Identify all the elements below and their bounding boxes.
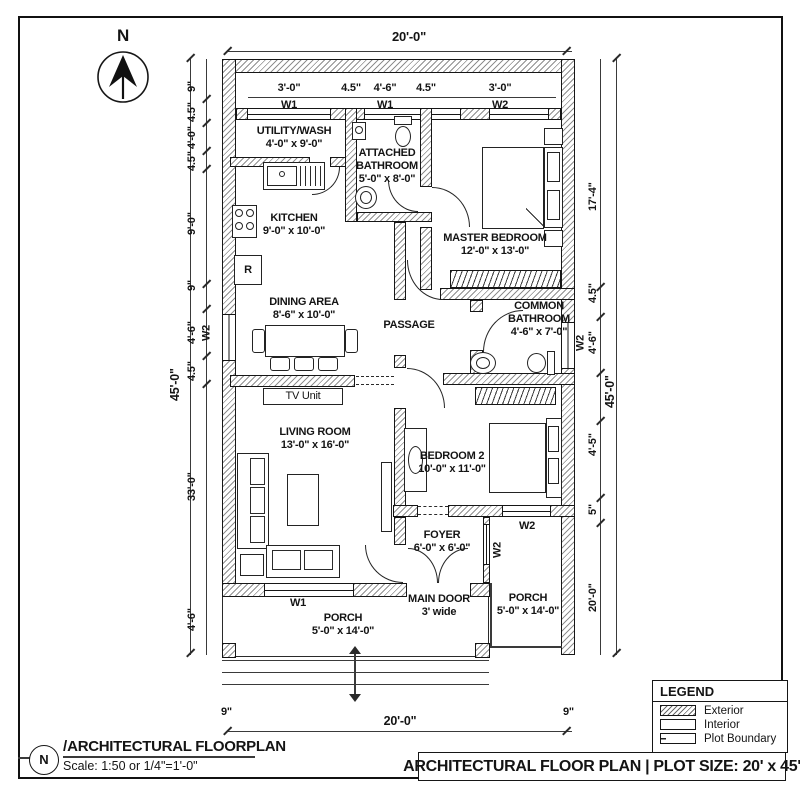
win-dim-3: 4'-6" xyxy=(365,82,405,94)
dim-left-8: 33'-0" xyxy=(185,468,199,506)
dim-left-6: 4'-6" xyxy=(185,316,199,350)
fridge: R xyxy=(234,255,262,285)
main-door-size: 3' wide xyxy=(397,606,481,619)
wall-exterior-bottom-1 xyxy=(222,583,265,597)
room-name: PORCH xyxy=(486,592,570,605)
wall-band-piece xyxy=(460,108,490,120)
tv-unit-label: TV Unit xyxy=(286,390,321,402)
tag-w2-foyer: W2 xyxy=(491,536,504,564)
sink-drainboard xyxy=(300,166,321,186)
label-main-door: MAIN DOOR 3' wide xyxy=(397,593,481,619)
opening-dashed-dining xyxy=(356,376,394,385)
dim-line-top xyxy=(227,51,572,52)
wall-master-bottom xyxy=(440,288,575,300)
room-size: 5'-0" x 14'-0" xyxy=(486,605,570,618)
room-name: DINING AREA xyxy=(249,296,359,309)
wall-band-piece xyxy=(548,108,561,120)
wall-exterior-top xyxy=(222,59,575,73)
legend-item: Interior xyxy=(653,717,787,731)
room-label-passage: PASSAGE xyxy=(369,319,449,332)
dim-right-w2-tag: W2 xyxy=(574,329,587,357)
wall-commonbath-bottom xyxy=(443,373,575,385)
dim-left-3: 4.5" xyxy=(185,149,199,173)
wall-bedroom2-bottom-a xyxy=(393,505,418,517)
dim-top: 20'-0" xyxy=(369,29,449,44)
room-label-master: MASTER BEDROOM 12'-0" x 13'-0" xyxy=(430,232,560,258)
dim-left-w2-tag: W2 xyxy=(200,319,213,347)
wall-band-piece xyxy=(236,108,248,120)
bed-pillow xyxy=(547,152,560,182)
room-name: UTILITY/WASH xyxy=(234,125,354,138)
room-size: 12'-0" x 13'-0" xyxy=(430,245,560,258)
dim-right-1: 4.5" xyxy=(586,281,600,305)
dim-bottom: 20'-0" xyxy=(366,714,434,728)
dim-overall-right: 45'-0" xyxy=(602,370,618,414)
step-arrow-up xyxy=(349,646,361,654)
dim-left-9: 4'-6" xyxy=(185,602,199,638)
dim-right-5: 20'-0" xyxy=(586,578,600,618)
plan-title: ARCHITECTURAL FLOORPLAN xyxy=(67,738,286,755)
north-label: N xyxy=(112,26,134,46)
sofa xyxy=(237,453,269,549)
dim-left-5: 9" xyxy=(185,274,199,298)
dining-chair xyxy=(345,329,358,353)
room-size: 5'-0" x 8'-0" xyxy=(350,173,424,186)
legend-label: Exterior xyxy=(704,705,744,717)
bed-fold-line xyxy=(526,206,543,228)
title-block: ARCHITECTURAL FLOOR PLAN | PLOT SIZE: 20… xyxy=(418,752,786,781)
room-name: BEDROOM 2 xyxy=(402,450,502,463)
room-size: 8'-6" x 10'-0" xyxy=(249,309,359,322)
nightstand xyxy=(544,128,563,145)
shower-head-icon xyxy=(355,126,363,134)
loveseat xyxy=(266,545,340,578)
room-name: BATHROOM xyxy=(503,313,575,326)
toilet-tank xyxy=(547,351,555,375)
wash-basin-inner xyxy=(476,357,490,369)
room-label-porch-side: PORCH 5'-0" x 14'-0" xyxy=(486,592,570,618)
room-size: 4'-0" x 9'-0" xyxy=(234,138,354,151)
win-dim-5: 3'-0" xyxy=(480,82,520,94)
tag-w2-bedroom2: W2 xyxy=(514,520,540,532)
room-label-porch-front: PORCH 5'-0" x 14'-0" xyxy=(293,612,393,638)
dim-bottom-offset-left: 9" xyxy=(221,706,247,718)
win-tag-w1a: W1 xyxy=(276,99,302,111)
toilet-tank xyxy=(394,116,412,125)
step-arrow-line xyxy=(354,652,356,696)
porch-post-right xyxy=(475,643,490,658)
win-dim-4: 4.5" xyxy=(412,82,440,94)
plan-scale: Scale: 1:50 or 1/4"=1'-0" xyxy=(63,759,198,773)
room-label-dining: DINING AREA 8'-6" x 10'-0" xyxy=(249,296,359,322)
wall-bath-bottom xyxy=(357,212,432,222)
legend-label: Plot Boundary xyxy=(704,733,776,745)
room-size: 10'-0" x 11'-0" xyxy=(402,463,502,476)
window-w2-foyer xyxy=(483,525,490,564)
win-dim-1: 3'-0" xyxy=(269,82,309,94)
dim-left-0: 9" xyxy=(185,74,199,100)
wardrobe-master xyxy=(450,270,561,288)
dim-right-0: 17'-4" xyxy=(586,176,600,218)
title-block-text: ARCHITECTURAL FLOOR PLAN | PLOT SIZE: 20… xyxy=(403,758,800,776)
wall-foyer-right-a xyxy=(483,517,490,525)
room-size: 9'-0" x 10'-0" xyxy=(244,225,344,238)
window-w2-left xyxy=(222,315,236,360)
footer-marker-circle: N xyxy=(29,745,59,775)
legend-item: Exterior xyxy=(653,702,787,717)
dim-left-4: 9'-0" xyxy=(185,207,199,241)
wardrobe-bedroom2 xyxy=(475,387,556,405)
wall-bedroom2-bottom-b xyxy=(448,505,503,517)
dining-chair xyxy=(294,357,314,371)
toilet-bowl xyxy=(527,353,546,373)
main-door-name: MAIN DOOR xyxy=(397,593,481,606)
room-name: ATTACHED xyxy=(350,147,424,160)
floor-plan-sheet: N 20'-0" 9" 20'-0" 9" 9" 4.5" 4'-0" 4.5"… xyxy=(0,0,800,800)
wall-passage-b xyxy=(394,355,406,368)
toilet-bowl xyxy=(395,126,411,147)
wall-passage-a xyxy=(394,222,406,300)
step-line-3 xyxy=(222,684,489,685)
bed-pillow xyxy=(548,426,559,452)
fridge-label: R xyxy=(244,264,252,276)
dim-bottom-offset-right: 9" xyxy=(563,706,589,718)
step-line-1 xyxy=(222,660,489,661)
dim-overall-left: 45'-0" xyxy=(167,363,183,407)
sink-faucet xyxy=(279,171,285,177)
room-name: COMMON xyxy=(503,300,575,313)
step-line-2 xyxy=(222,672,489,673)
dining-chair xyxy=(252,329,265,353)
legend-swatch-plot-boundary xyxy=(660,733,696,744)
dim-right-3: 4'-5" xyxy=(586,428,600,462)
plan-title-underline xyxy=(63,756,255,758)
dim-left-1: 4.5" xyxy=(185,100,199,124)
window-row-line xyxy=(248,97,556,98)
wall-dining-living xyxy=(230,375,355,387)
room-name: KITCHEN xyxy=(244,212,344,225)
tag-w1-bottom: W1 xyxy=(285,597,311,609)
room-size: 5'-0" x 14'-0" xyxy=(293,625,393,638)
dim-right-4: 5" xyxy=(586,500,600,520)
dim-left-7: 4.5" xyxy=(185,359,199,383)
legend-swatch-interior xyxy=(660,719,696,730)
opening-dashed-bedroom2 xyxy=(418,506,448,515)
room-label-attached-bath: ATTACHED BATHROOM 5'-0" x 8'-0" xyxy=(350,147,424,186)
legend-item: Plot Boundary xyxy=(653,731,787,745)
room-name: MASTER BEDROOM xyxy=(430,232,560,245)
win-dim-2: 4.5" xyxy=(337,82,365,94)
wall-exterior-left-lower xyxy=(222,360,236,597)
stove-burner xyxy=(235,222,243,230)
room-label-bedroom2: BEDROOM 2 10'-0" x 11'-0" xyxy=(402,450,502,476)
porch-post-left xyxy=(222,643,236,658)
wall-bedroom2-bottom-c xyxy=(550,505,575,517)
dining-chair xyxy=(270,357,290,371)
room-name: FOYER xyxy=(402,529,482,542)
legend-box: LEGEND Exterior Interior Plot Boundary xyxy=(652,680,788,753)
dim-line-bottom xyxy=(227,731,572,732)
room-label-kitchen: KITCHEN 9'-0" x 10'-0" xyxy=(244,212,344,238)
room-size: 6'-0" x 6'-0" xyxy=(402,542,482,555)
legend-title: LEGEND xyxy=(653,681,787,702)
dim-line-right-overall xyxy=(616,59,617,655)
room-label-utility: UTILITY/WASH 4'-0" x 9'-0" xyxy=(234,125,354,151)
coffee-table xyxy=(287,474,319,526)
room-size: 4'-6" x 7'-0" xyxy=(503,326,575,339)
window-w2-bedroom2 xyxy=(503,505,550,517)
wall-exterior-right-upper xyxy=(561,59,575,323)
room-name: PASSAGE xyxy=(369,319,449,332)
north-arrow-icon xyxy=(96,48,150,104)
room-name: PORCH xyxy=(293,612,393,625)
porch-side-bottom-line xyxy=(490,646,562,648)
wall-foyer-right-b xyxy=(483,564,490,583)
dim-right-2: 4'-6" xyxy=(586,326,600,360)
stove-burner xyxy=(235,209,243,217)
bed-pillow xyxy=(548,458,559,484)
tv-unit: TV Unit xyxy=(263,388,343,405)
legend-swatch-exterior xyxy=(660,705,696,716)
wash-basin-inner xyxy=(360,191,372,204)
bed-pillow xyxy=(547,190,560,220)
dim-line-right-chain xyxy=(600,59,601,655)
room-size: 13'-0" x 16'-0" xyxy=(255,439,375,452)
window-w1-bottom xyxy=(265,583,353,597)
plan-title-row: /ARCHITECTURAL FLOORPLAN xyxy=(63,738,286,756)
dining-chair xyxy=(318,357,338,371)
side-table xyxy=(240,554,264,576)
win-tag-w1b: W1 xyxy=(372,99,398,111)
legend-label: Interior xyxy=(704,719,740,731)
room-name: BATHROOM xyxy=(350,160,424,173)
room-name: LIVING ROOM xyxy=(255,426,375,439)
tv-shelf xyxy=(381,462,392,532)
step-arrow-down xyxy=(349,694,361,702)
footer-marker-label: N xyxy=(39,752,48,767)
room-label-foyer: FOYER 6'-0" x 6'-0" xyxy=(402,529,482,555)
room-label-common-bath: COMMON BATHROOM 4'-6" x 7'-0" xyxy=(503,300,575,339)
room-label-living: LIVING ROOM 13'-0" x 16'-0" xyxy=(255,426,375,452)
dining-table xyxy=(265,325,345,357)
win-tag-w2: W2 xyxy=(487,99,513,111)
wall-commonbath-left-a xyxy=(470,300,483,312)
